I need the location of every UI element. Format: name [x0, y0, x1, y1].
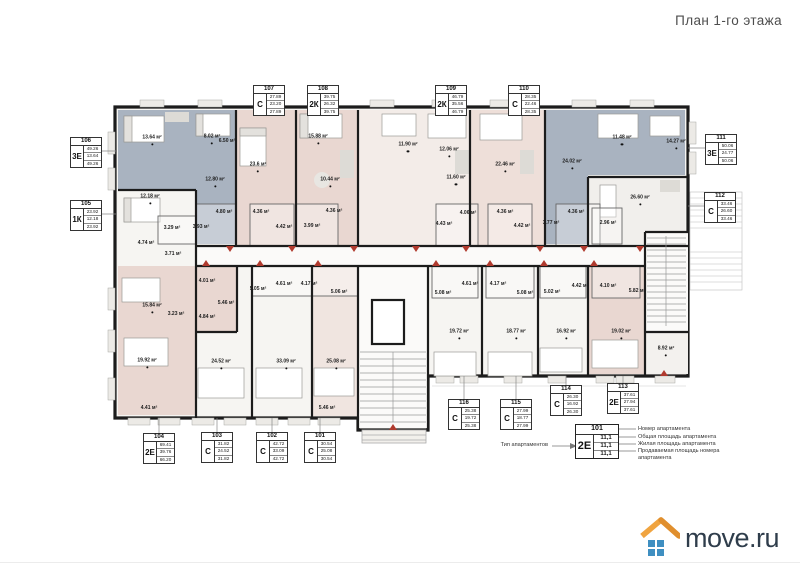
legend-sample-type: 2Е [576, 435, 594, 459]
floor-plan-page: План 1-го этажа [0, 0, 800, 566]
footer-divider [0, 562, 800, 563]
legend-sample-living: 11,1 [594, 442, 618, 450]
legend-line-total-area: Общая площадь апартамента [638, 434, 750, 441]
legend-sample-sellable: 11,1 [594, 450, 618, 458]
site-logo: move.ru [640, 516, 779, 556]
legend-sample-box: 101 2Е 11,1 11,1 11,1 [575, 424, 619, 459]
house-icon [640, 516, 680, 556]
legend-line-sellable-area: Продаваемая площадь номера апартамента [638, 448, 733, 462]
legend-type-label: Тип апартаментов [488, 442, 548, 448]
logo-text: move.ru [685, 520, 779, 556]
exterior-stair [690, 192, 742, 290]
legend-line-living-area: Жилая площадь апартамента [638, 441, 750, 448]
legend-sample-number: 101 [576, 425, 618, 435]
floor-plan-drawing [0, 0, 800, 566]
legend-sample-total: 11,1 [594, 435, 618, 442]
legend-line-number: Номер апартамента [638, 426, 750, 433]
